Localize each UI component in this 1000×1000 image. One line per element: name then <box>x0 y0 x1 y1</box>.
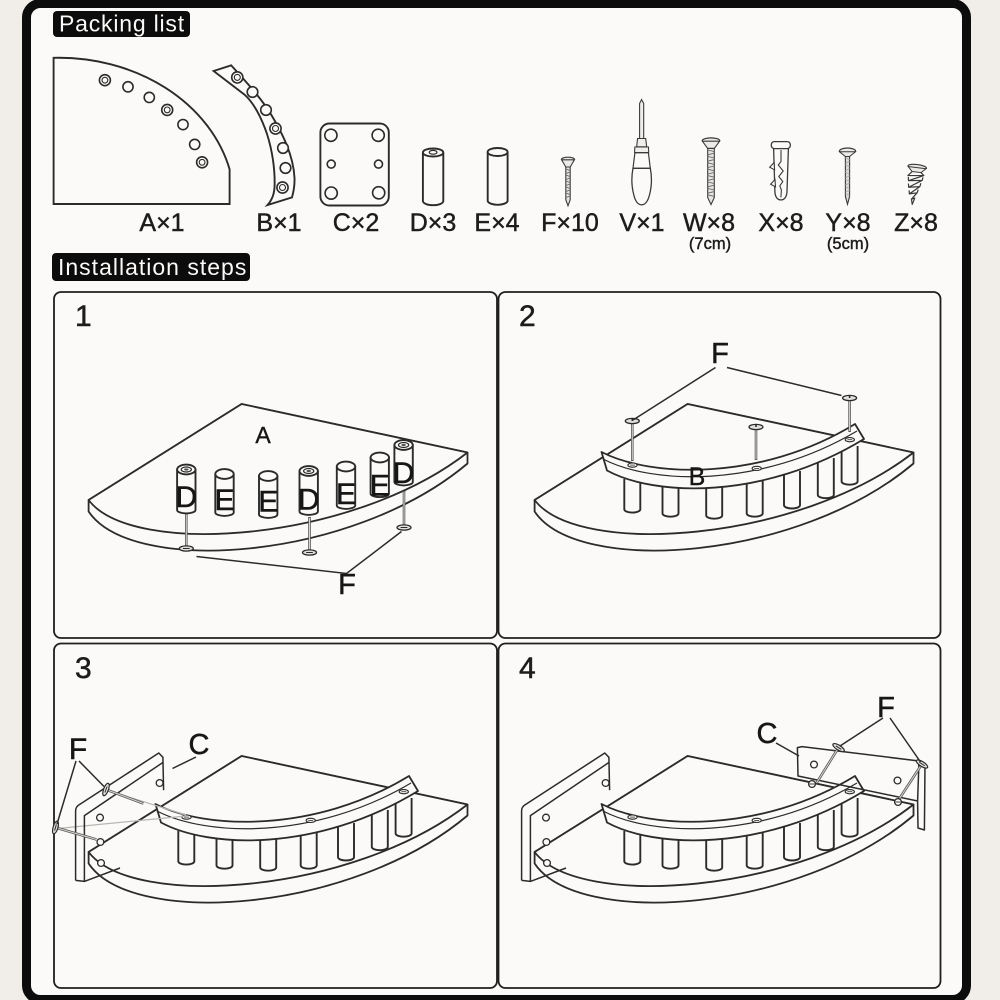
svg-text:F×10: F×10 <box>541 209 599 237</box>
svg-text:(7cm): (7cm) <box>689 235 731 253</box>
svg-text:D: D <box>393 457 415 490</box>
svg-text:E: E <box>214 484 234 517</box>
svg-text:E: E <box>336 478 356 511</box>
svg-text:D×3: D×3 <box>410 209 457 237</box>
svg-text:A×1: A×1 <box>139 209 184 237</box>
svg-text:V×1: V×1 <box>619 209 664 237</box>
svg-text:3: 3 <box>75 652 92 685</box>
svg-text:(5cm): (5cm) <box>827 235 869 253</box>
svg-text:Z×8: Z×8 <box>894 209 938 237</box>
svg-text:Y×8: Y×8 <box>825 209 870 237</box>
svg-text:F: F <box>711 338 729 370</box>
svg-text:Packing list: Packing list <box>59 11 185 37</box>
svg-text:A: A <box>255 422 271 448</box>
svg-text:F: F <box>877 692 895 724</box>
svg-text:2: 2 <box>519 300 536 333</box>
svg-text:W×8: W×8 <box>683 209 735 237</box>
svg-text:E: E <box>258 486 278 519</box>
svg-text:E×4: E×4 <box>474 209 519 237</box>
svg-text:C: C <box>757 718 778 750</box>
svg-text:D: D <box>298 484 320 517</box>
svg-text:F: F <box>338 569 356 601</box>
svg-text:C: C <box>189 729 210 761</box>
svg-text:F: F <box>69 733 87 766</box>
svg-text:Installation steps: Installation steps <box>58 254 247 280</box>
svg-text:D: D <box>175 481 197 514</box>
svg-text:4: 4 <box>519 652 536 685</box>
svg-text:C×2: C×2 <box>333 209 380 237</box>
svg-text:E: E <box>370 470 390 503</box>
svg-text:X×8: X×8 <box>758 209 803 237</box>
svg-text:B×1: B×1 <box>256 209 301 237</box>
svg-text:1: 1 <box>75 300 92 333</box>
svg-text:B: B <box>689 463 706 491</box>
